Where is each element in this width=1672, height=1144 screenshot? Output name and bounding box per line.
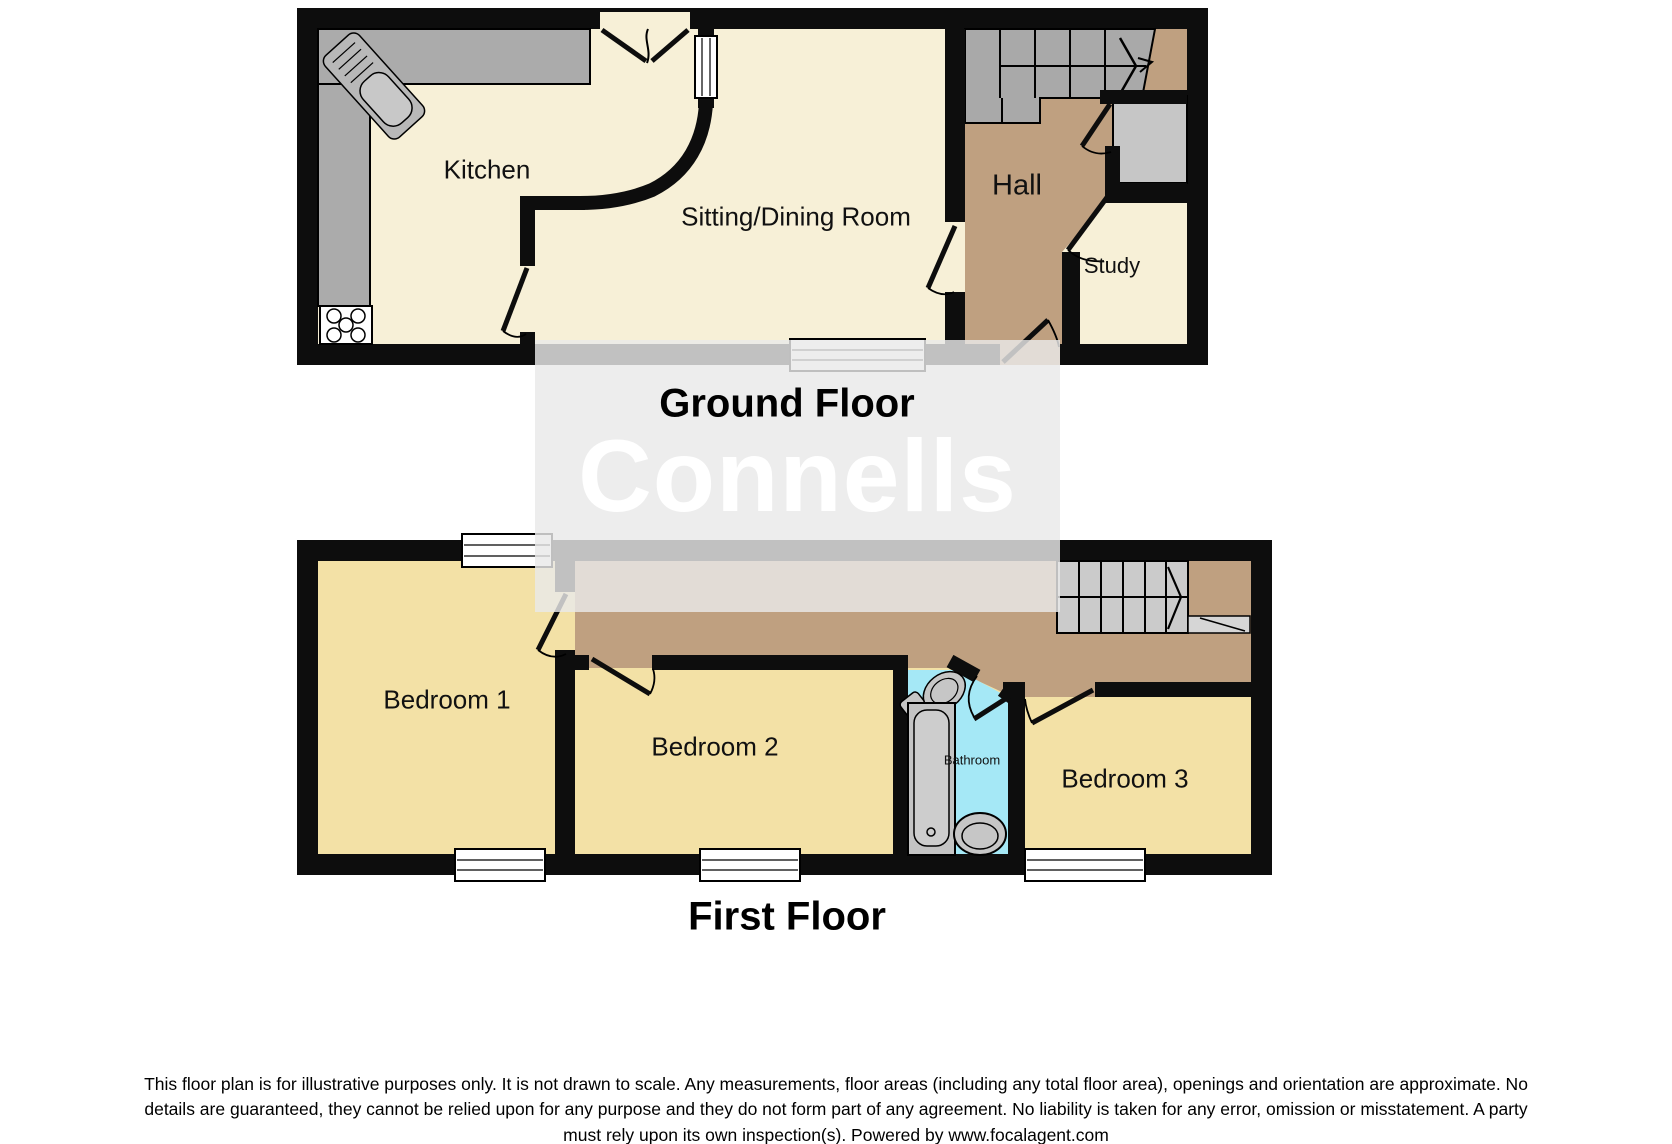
ground-floor-title: Ground Floor [659, 382, 915, 427]
room-label-bedroom1: Bedroom 1 [383, 685, 510, 716]
hob [320, 306, 372, 344]
ff-window-bed3 [1025, 849, 1145, 881]
room-label-kitchen: Kitchen [444, 155, 531, 186]
disclaimer-line-2: details are guaranteed, they cannot be r… [0, 1097, 1672, 1122]
disclaimer: This floor plan is for illustrative purp… [0, 1072, 1672, 1144]
door-recess [600, 10, 690, 29]
basin [954, 813, 1006, 855]
stair-railing [1188, 616, 1250, 633]
internal-window [695, 36, 717, 98]
first-floor-title: First Floor [688, 895, 886, 940]
disclaimer-line-3: must rely upon its own inspection(s). Po… [0, 1123, 1672, 1144]
disclaimer-line-1: This floor plan is for illustrative purp… [0, 1072, 1672, 1097]
floorplan-canvas: Connells Ground Floor First Floor Kitche… [0, 0, 1672, 1144]
room-label-hall: Hall [992, 170, 1042, 203]
ff-window-bed1 [455, 849, 545, 881]
room-label-bedroom2: Bedroom 2 [651, 732, 778, 763]
room-label-bathroom: Bathroom [944, 753, 1000, 768]
room-label-bedroom3: Bedroom 3 [1061, 764, 1188, 795]
ground-floor-plan [297, 8, 1208, 371]
room-label-study: Study [1084, 253, 1140, 279]
ff-window-bed2 [700, 849, 800, 881]
bath [908, 703, 955, 855]
brand-watermark: Connells [578, 418, 1017, 535]
room-label-sitting-dining: Sitting/Dining Room [681, 202, 911, 233]
